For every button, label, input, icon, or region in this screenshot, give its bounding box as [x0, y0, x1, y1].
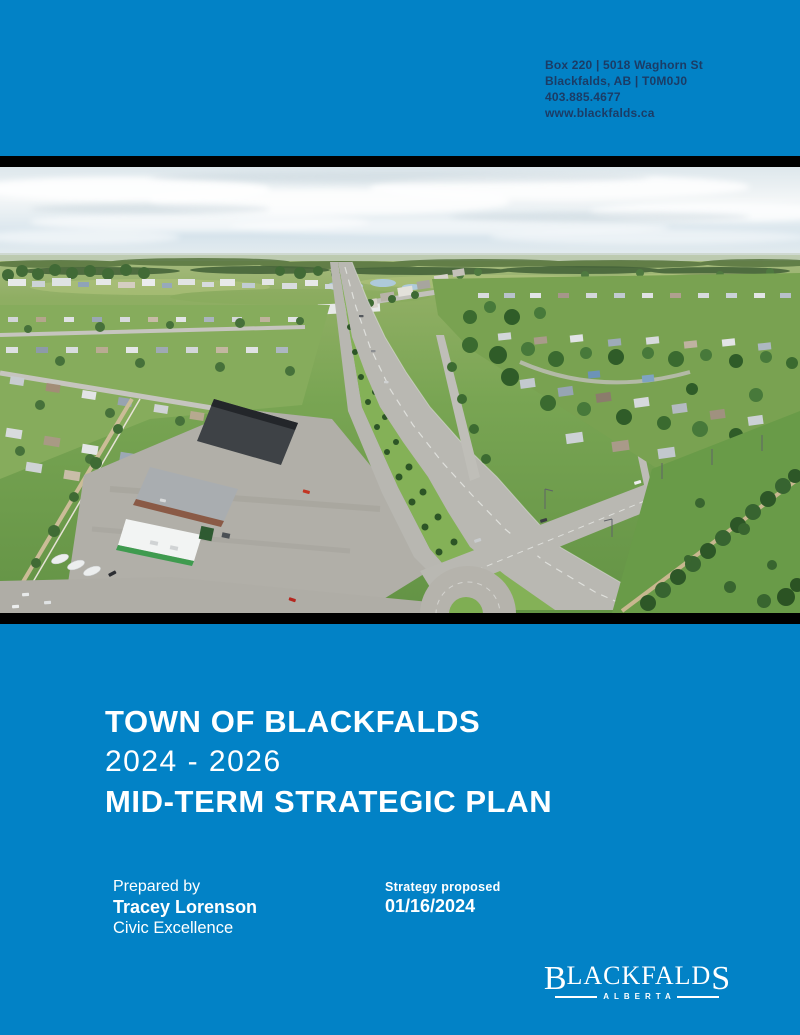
logo-wordmark: BLACKFALDS	[545, 965, 729, 993]
header-address: Box 220 | 5018 Waghorn St Blackfalds, AB…	[545, 57, 703, 121]
logo-letters-middle: LACKFALD	[567, 965, 712, 986]
title-years: 2024 - 2026	[105, 742, 552, 782]
prepared-by-label: Prepared by	[113, 877, 257, 897]
logo-tagline: ALBERTA	[603, 992, 676, 1002]
divider-bottom	[0, 613, 800, 624]
aerial-photo	[0, 167, 800, 613]
strategy-proposed-label: Strategy proposed	[385, 880, 501, 895]
logo-rule-right	[677, 996, 719, 998]
title-block: TOWN OF BLACKFALDS 2024 - 2026 MID-TERM …	[105, 702, 552, 822]
logo-letter-last: S	[711, 965, 730, 993]
divider-top	[0, 156, 800, 167]
title-line-3: MID-TERM STRATEGIC PLAN	[105, 782, 552, 822]
website-url: www.blackfalds.ca	[545, 105, 703, 121]
logo-tagline-row: ALBERTA	[545, 992, 729, 1002]
aerial-photo-svg	[0, 167, 800, 613]
logo-rule-left	[555, 996, 597, 998]
prepared-by-block: Prepared by Tracey Lorenson Civic Excell…	[113, 877, 257, 939]
address-line-1: Box 220 | 5018 Waghorn St	[545, 57, 703, 73]
strategy-proposed-date: 01/16/2024	[385, 895, 501, 917]
title-line-1: TOWN OF BLACKFALDS	[105, 702, 552, 742]
logo-letter-first: B	[544, 965, 567, 993]
cover-page: Box 220 | 5018 Waghorn St Blackfalds, AB…	[0, 0, 800, 1035]
strategy-proposed-block: Strategy proposed 01/16/2024	[385, 880, 501, 917]
prepared-by-name: Tracey Lorenson	[113, 897, 257, 918]
blackfalds-logo: BLACKFALDS ALBERTA	[545, 965, 729, 1002]
address-line-2: Blackfalds, AB | T0M0J0	[545, 73, 703, 89]
phone-number: 403.885.4677	[545, 89, 703, 105]
prepared-by-org: Civic Excellence	[113, 918, 257, 939]
